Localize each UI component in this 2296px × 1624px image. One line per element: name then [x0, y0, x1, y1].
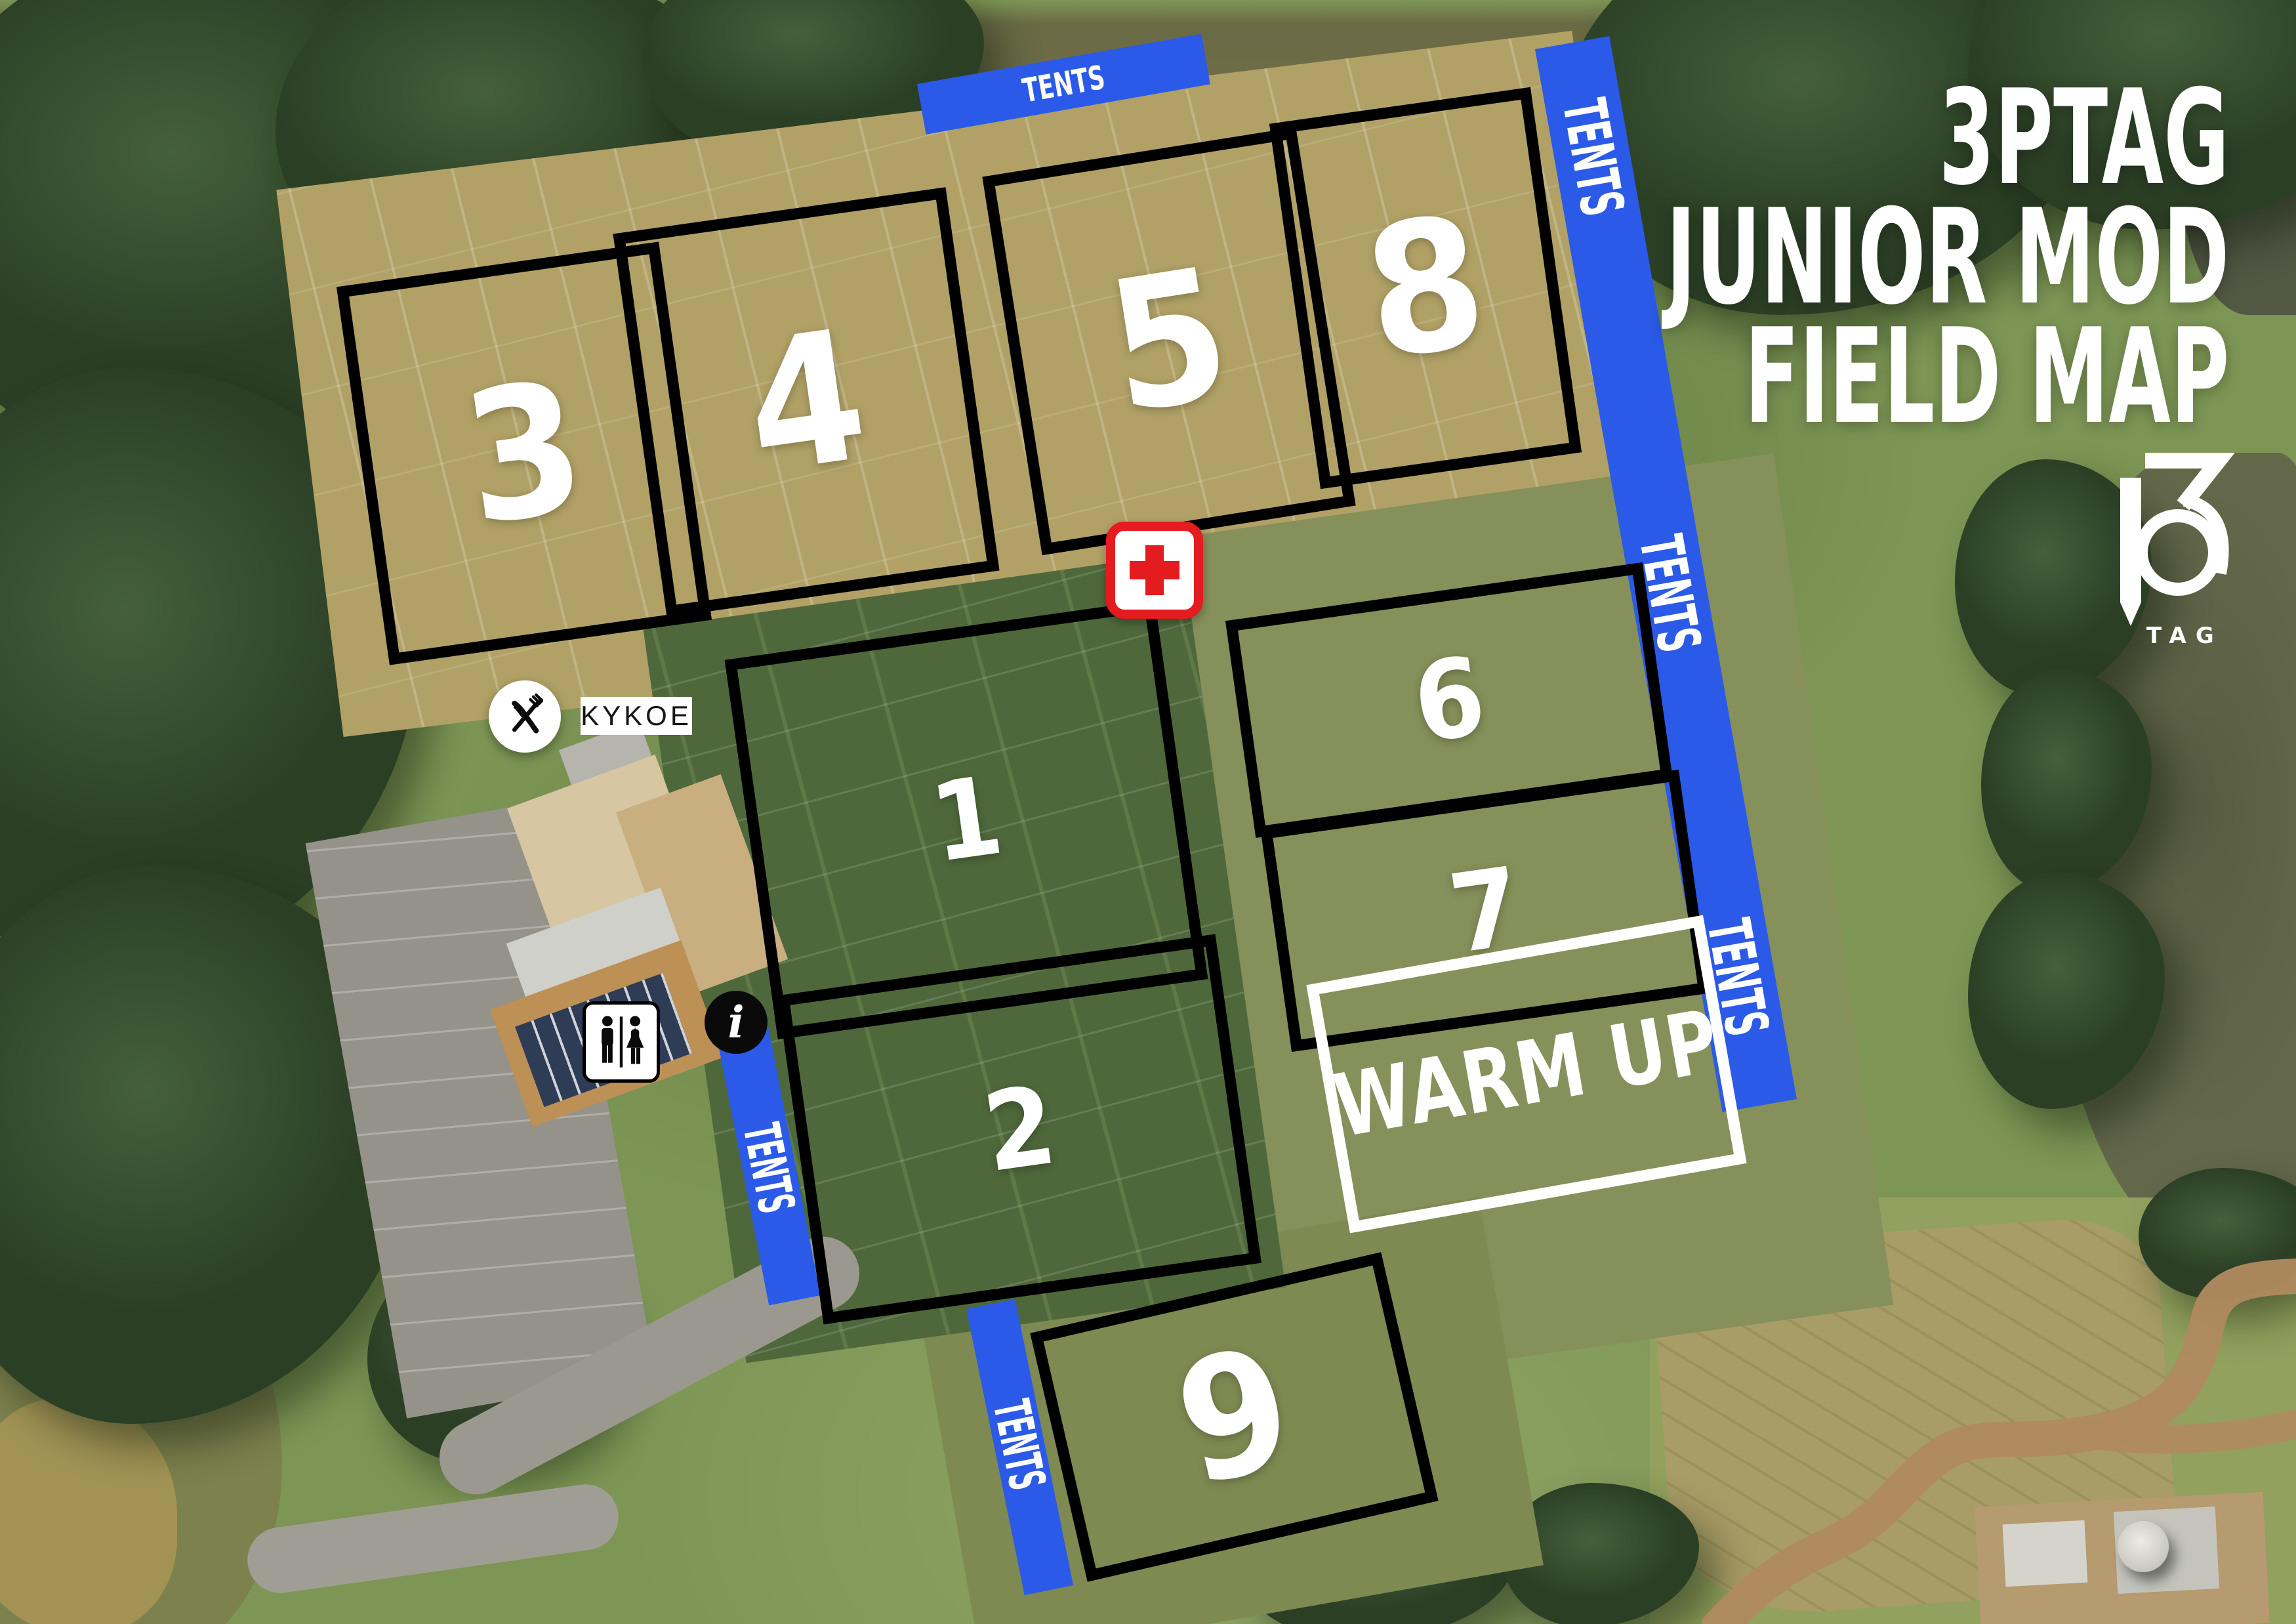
- building-bottom-right-roof: [2003, 1520, 2088, 1587]
- 3ptag-logo-icon: TAG: [2080, 427, 2250, 650]
- title-line-2: JUNIOR MOD: [1666, 198, 2229, 318]
- restrooms-marker: [583, 1001, 660, 1083]
- field-4-outline: 4: [613, 187, 999, 617]
- food-vendor-marker: [489, 680, 561, 753]
- title-line-3: FIELD MAP: [1666, 318, 2229, 437]
- field-8-label: 8: [1356, 191, 1496, 386]
- warmup-label: WARM UP: [1327, 991, 1727, 1157]
- field-6-label: 6: [1407, 642, 1491, 759]
- fork-knife-icon: [501, 693, 548, 740]
- first-aid-marker: [1106, 522, 1203, 619]
- field-4-label: 4: [737, 305, 876, 500]
- field-5-label: 5: [1098, 243, 1240, 439]
- field-1-label: 1: [924, 761, 1008, 878]
- field-9-label: 9: [1163, 1323, 1305, 1510]
- field-map: TENTS TENTS TENTS TENTS TENTS TENTS 3 4 …: [0, 0, 2296, 1624]
- 3ptag-logo: TAG: [2080, 427, 2250, 650]
- field-2-outline: 2: [777, 934, 1261, 1325]
- field-3-label: 3: [455, 356, 594, 551]
- info-marker: i: [705, 991, 768, 1054]
- logo-tag-text: TAG: [2146, 623, 2223, 649]
- first-aid-cross-icon: [1130, 545, 1179, 595]
- info-icon: i: [728, 1001, 744, 1044]
- field-8-outline: 8: [1269, 87, 1582, 489]
- restrooms-icon: [592, 1012, 650, 1072]
- food-vendor-name-badge: KYKOE: [581, 697, 692, 735]
- field-2-label: 2: [977, 1071, 1061, 1188]
- tents-label: TENTS: [1019, 58, 1107, 110]
- title-line-1: 3PTAG: [1666, 79, 2229, 198]
- food-vendor-name: KYKOE: [581, 700, 692, 732]
- water-tank: [2118, 1521, 2169, 1572]
- page-title: 3PTAG JUNIOR MOD FIELD MAP: [1666, 79, 2229, 437]
